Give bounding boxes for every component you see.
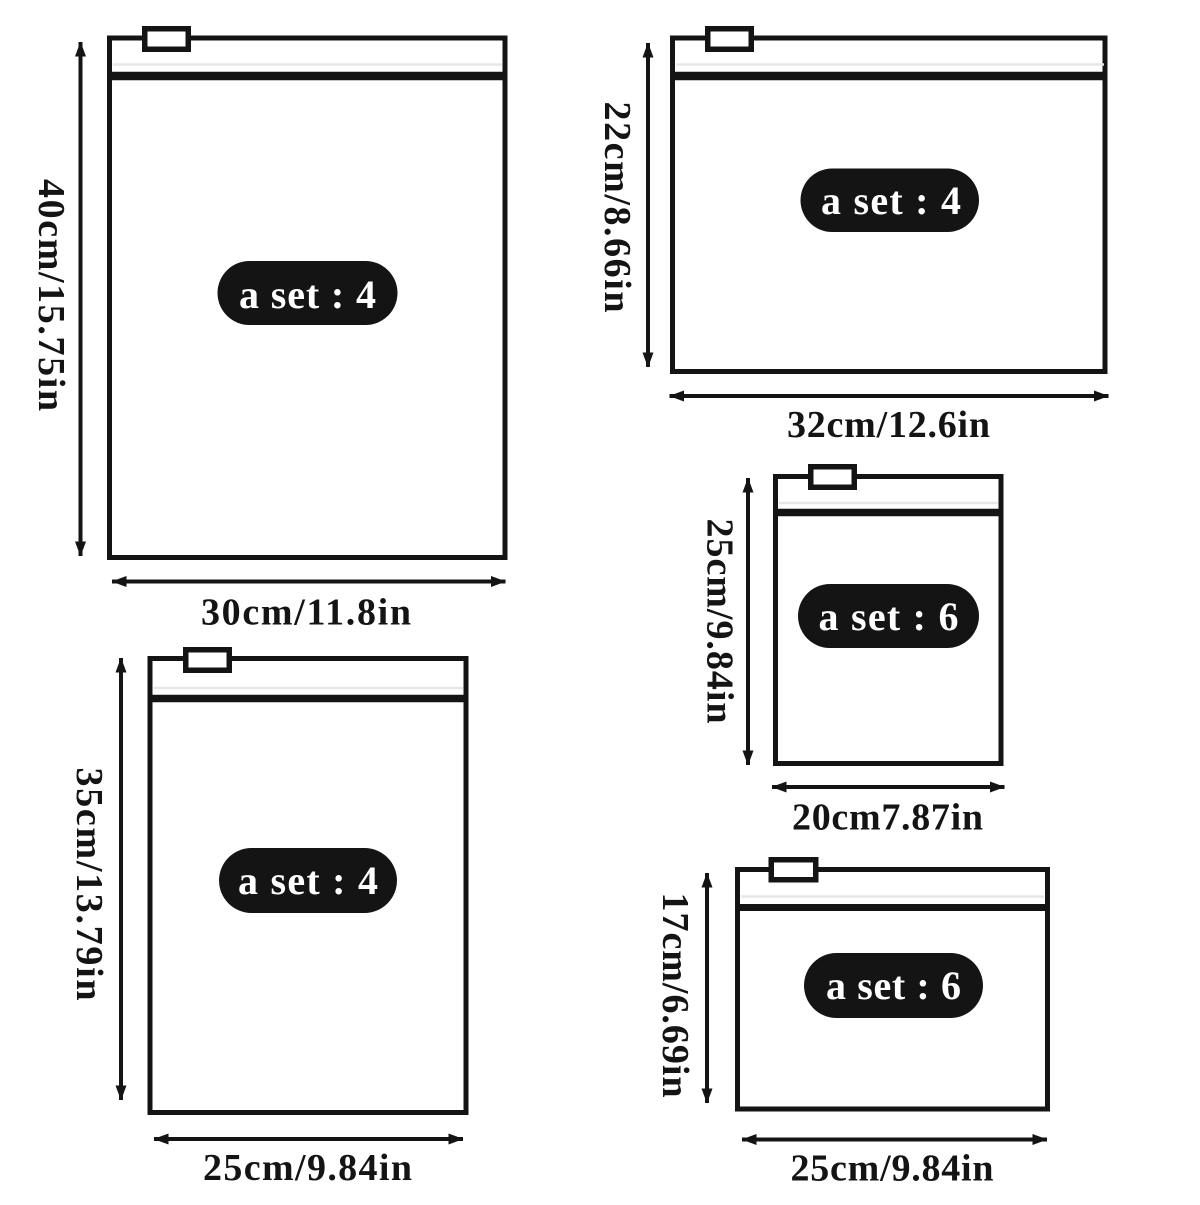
svg-text:20cm7.87in: 20cm7.87in [792, 797, 983, 839]
svg-text:32cm/12.6in: 32cm/12.6in [787, 404, 990, 446]
svg-text:25cm/9.84in: 25cm/9.84in [203, 1147, 412, 1189]
svg-text:30cm/11.8in: 30cm/11.8in [201, 592, 411, 634]
svg-text:a set : 6: a set : 6 [826, 963, 961, 1008]
svg-text:a set : 4: a set : 4 [239, 272, 376, 317]
svg-text:17cm/6.69in: 17cm/6.69in [654, 893, 696, 1098]
svg-text:25cm/9.84in: 25cm/9.84in [791, 1148, 994, 1190]
svg-text:25cm/9.84in: 25cm/9.84in [699, 519, 741, 724]
svg-text:22cm/8.66in: 22cm/8.66in [596, 102, 638, 313]
